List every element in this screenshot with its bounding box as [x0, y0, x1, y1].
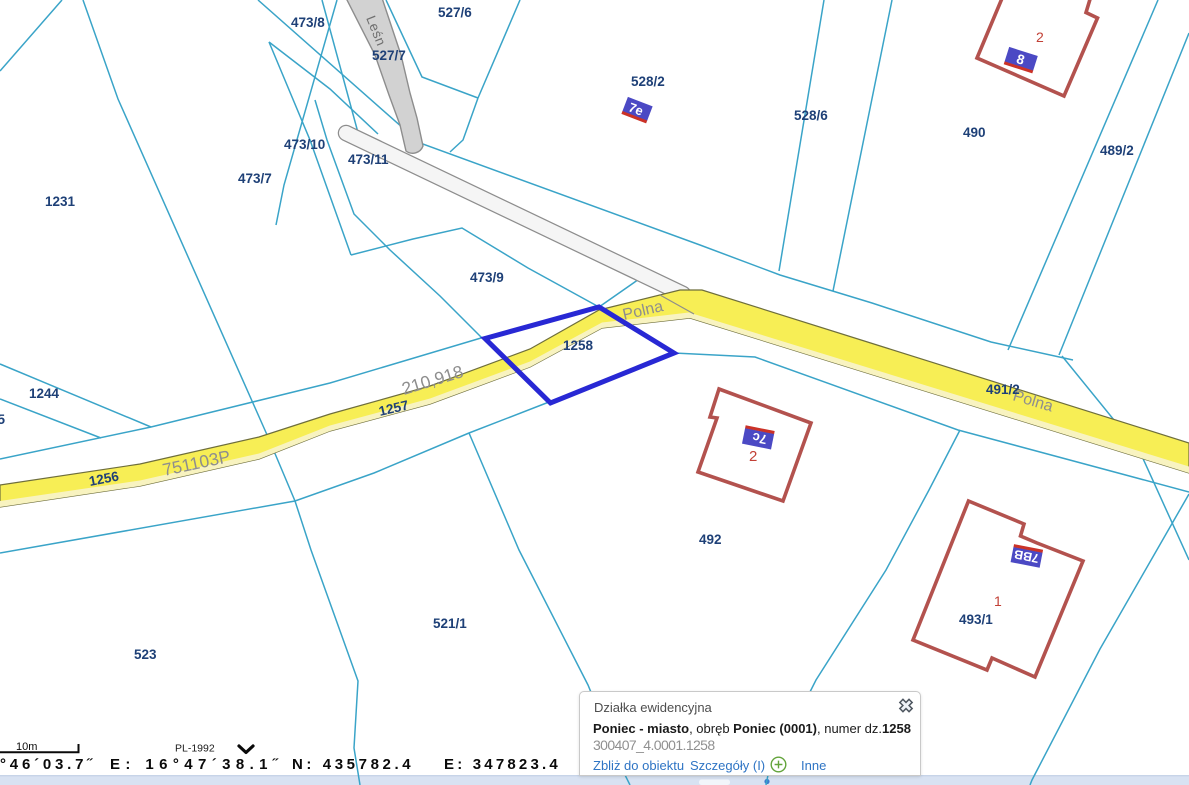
svg-text:°46´03.7˝E: 16°47´38.1˝N: 4357: °46´03.7˝E: 16°47´38.1˝N: 435782.4E: 347… [0, 756, 561, 773]
svg-text:473/9: 473/9 [470, 270, 504, 285]
svg-text:PL-1992: PL-1992 [175, 743, 215, 755]
svg-text:1231: 1231 [45, 194, 76, 209]
svg-text:490: 490 [963, 125, 986, 140]
svg-text:521/1: 521/1 [433, 616, 467, 631]
svg-text:1244: 1244 [29, 386, 60, 401]
svg-text:528/6: 528/6 [794, 108, 828, 123]
svg-text:1: 1 [994, 593, 1002, 609]
svg-text:493/1: 493/1 [959, 612, 993, 627]
svg-text:491/2: 491/2 [986, 382, 1020, 397]
svg-text:528/2: 528/2 [631, 74, 665, 89]
svg-text:489/2: 489/2 [1100, 143, 1134, 158]
svg-text:527/7: 527/7 [372, 48, 406, 63]
svg-text:473/8: 473/8 [291, 15, 325, 30]
svg-text:10m: 10m [16, 741, 37, 753]
svg-text:473/11: 473/11 [348, 152, 389, 167]
svg-text:1258: 1258 [563, 338, 594, 353]
svg-text:473/7: 473/7 [238, 171, 272, 186]
svg-text:2: 2 [749, 448, 757, 465]
svg-text:473/10: 473/10 [284, 137, 325, 152]
svg-text:2: 2 [1036, 29, 1044, 45]
svg-text:1245: 1245 [0, 412, 6, 427]
svg-text:492: 492 [699, 532, 722, 547]
svg-text:523: 523 [134, 647, 157, 662]
svg-text:527/6: 527/6 [438, 5, 472, 20]
svg-text:7c: 7c [751, 430, 768, 448]
